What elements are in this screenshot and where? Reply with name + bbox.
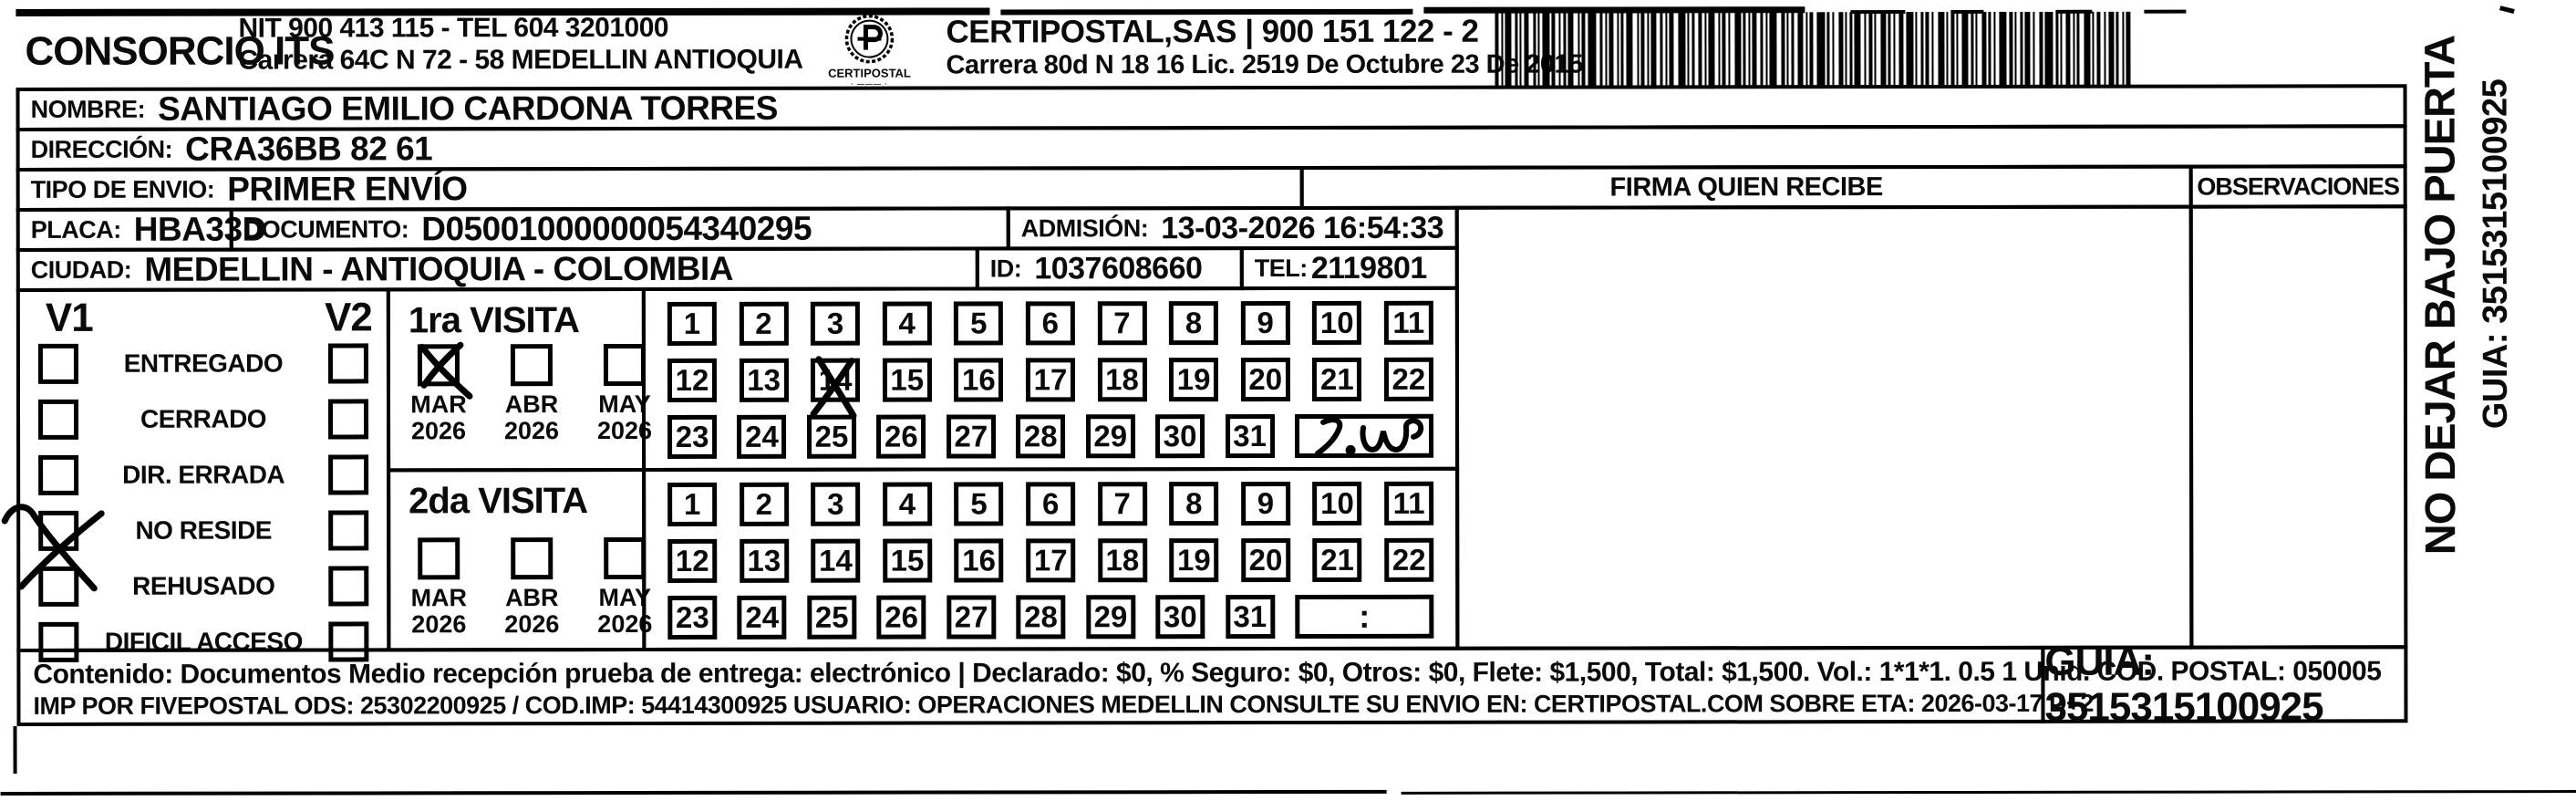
day-cell-6: 6 (1026, 482, 1075, 525)
ciudad-value: MEDELLIN - ANTIOQUIA - COLOMBIA (144, 250, 733, 289)
visit2-months: MAR2026ABR2026MAY2026 (405, 537, 658, 638)
day-cell-31: 31 (1226, 414, 1275, 458)
visit1-panel: 1ra VISITA MAR2026ABR2026MAY2026 (387, 287, 646, 472)
month-checkbox-may (604, 344, 646, 386)
day-cell-27: 27 (947, 414, 996, 458)
tipo-envio-cell: TIPO DE ENVIO: PRIMER ENVÍO (16, 166, 1304, 212)
certipostal-logo: CERTIPOSTAL · ——— · (827, 14, 911, 88)
day-cell-4: 4 (883, 302, 932, 346)
day-cell-18: 18 (1098, 538, 1147, 582)
visit1-months: MAR2026ABR2026MAY2026 (405, 344, 658, 444)
day-cell-22: 22 (1384, 358, 1433, 401)
scanned-delivery-form: CONSORCIO ITS NIT 900 413 115 - TEL 604 … (0, 0, 2576, 801)
tel-value: 2119801 (1311, 250, 1427, 286)
month-option: ABR2026 (498, 344, 565, 444)
id-value: 1037608660 (1034, 251, 1202, 286)
day-row: 1234567891011 (667, 301, 1433, 346)
day-cell-8: 8 (1169, 482, 1218, 525)
barcode (1495, 12, 2193, 89)
firma-area (1455, 205, 2194, 650)
month-option: ABR2026 (498, 537, 565, 638)
status-label: CERRADO (78, 404, 328, 433)
day-cell-11: 11 (1384, 482, 1433, 525)
day-row: 232425262728293031: (667, 595, 1433, 640)
status-label: DIR. ERRADA (78, 460, 328, 489)
day-cell-15: 15 (883, 359, 932, 402)
status-panel: V1 V2 ENTREGADOCERRADODIR. ERRADANO RESI… (16, 287, 391, 652)
day-cell-16: 16 (955, 538, 1004, 582)
day-cell-20: 20 (1241, 358, 1290, 401)
tel-cell: TEL: 2119801 (1240, 246, 1459, 290)
day-cell-19: 19 (1169, 358, 1218, 401)
nombre-value: SANTIAGO EMILIO CARDONA TORRES (158, 89, 778, 129)
scan-artifact (2499, 5, 2515, 14)
month-option: MAR2026 (405, 537, 472, 638)
checkbox-v1-cerrado (38, 399, 78, 439)
carrier-info: CERTIPOSTAL,SAS | 900 151 122 - 2 Carrer… (946, 15, 1582, 81)
shipment-details-line2: IMP POR FIVEPOSTAL ODS: 25302200925 / CO… (33, 689, 2028, 722)
day-cell-12: 12 (667, 539, 717, 583)
visit2-title: 2da VISITA (409, 481, 587, 522)
day-cell-1: 1 (667, 302, 717, 346)
day-cell-27: 27 (947, 595, 996, 639)
id-label: ID: (990, 255, 1022, 283)
day-cell-14: 14 (811, 359, 860, 402)
day-cell-6: 6 (1026, 301, 1075, 345)
day-cell-28: 28 (1016, 414, 1065, 458)
tel-label: TEL: (1255, 254, 1308, 282)
day-cell-25: 25 (807, 415, 856, 459)
day-cell-17: 17 (1026, 538, 1075, 582)
status-label: REHUSADO (78, 571, 328, 600)
bottom-scan-line (1, 790, 1387, 796)
side-guia-text: GUIA: 3515315100925 (2477, 155, 2519, 429)
documento-label: DOCUMENTO: (244, 215, 409, 244)
month-checkbox-abr (511, 344, 553, 386)
direccion-label: DIRECCIÓN: (31, 135, 173, 163)
day-cell-8: 8 (1169, 301, 1218, 345)
status-rows: ENTREGADOCERRADODIR. ERRADANO RESIDEREHU… (20, 335, 388, 670)
day-cell-10: 10 (1312, 301, 1361, 345)
status-row: ENTREGADO (20, 335, 387, 391)
visit2-day-grid-rows: 1234567891011121314151617181920212223242… (646, 471, 1455, 648)
ciudad-cell: CIUDAD: MEDELLIN - ANTIOQUIA - COLOMBIA (16, 246, 979, 291)
month-year: 2026 (411, 611, 466, 638)
day-row: 1213141516171819202122 (667, 358, 1433, 402)
handwritten-note-box (1295, 414, 1433, 458)
day-cell-21: 21 (1312, 358, 1361, 401)
status-label: ENTREGADO (78, 348, 328, 378)
visit1-title: 1ra VISITA (409, 300, 579, 341)
month-label: MAR (410, 391, 467, 418)
sender-info: NIT 900 413 115 - TEL 604 3201000 Carrer… (238, 12, 802, 77)
day-cell-13: 13 (740, 359, 789, 402)
day-cell-5: 5 (954, 482, 1003, 525)
month-label: MAR (411, 585, 468, 611)
status-row: REHUSADO (20, 557, 387, 614)
month-label: ABR (505, 585, 559, 611)
firma-column-header: FIRMA QUIEN RECIBE (1300, 165, 2193, 210)
day-cell-11: 11 (1384, 301, 1433, 345)
month-label: ABR (505, 391, 559, 418)
day-cell-24: 24 (737, 415, 786, 459)
checkbox-v2-entregado (328, 343, 368, 383)
day-cell-2: 2 (739, 302, 788, 346)
placa-cell: PLACA: HBA33D (16, 208, 233, 252)
month-option: MAR2026 (405, 344, 472, 444)
admision-cell: ADMISIÓN: 13-03-2026 16:54:33 (1007, 206, 1459, 251)
admision-label: ADMISIÓN: (1021, 214, 1149, 243)
day-row: 1234567891011 (667, 482, 1433, 526)
day-cell-5: 5 (954, 301, 1003, 345)
status-row: NO RESIDE (20, 502, 387, 558)
checkbox-v1-dir-errada (38, 454, 78, 494)
day-cell-23: 23 (667, 415, 717, 459)
day-cell-31: 31 (1226, 595, 1275, 639)
day-cell-1: 1 (667, 483, 717, 526)
logo-caption: CERTIPOSTAL (827, 67, 911, 80)
shipment-details-cell: Contenido: Documentos Medio recepción pr… (16, 646, 2044, 726)
day-cell-29: 29 (1086, 414, 1135, 458)
sender-address-line: Carrera 64C N 72 - 58 MEDELLIN ANTIOQUIA (238, 44, 802, 77)
day-cell-16: 16 (954, 358, 1003, 401)
status-col-v2-header: V2 (325, 295, 372, 340)
carrier-address-line: Carrera 80d N 18 16 Lic. 2519 De Octubre… (946, 49, 1582, 81)
visit1-day-grid-rows: 1234567891011121314151617181920212223242… (646, 290, 1455, 468)
day-cell-13: 13 (740, 539, 789, 583)
tipo-envio-label: TIPO DE ENVIO: (31, 175, 215, 203)
month-year: 2026 (504, 418, 559, 444)
day-cell-3: 3 (811, 483, 860, 526)
checkbox-v2-cerrado (328, 399, 368, 439)
day-cell-12: 12 (667, 359, 717, 402)
tipo-envio-value: PRIMER ENVÍO (227, 170, 467, 208)
visit1-day-grid: 1234567891011121314151617181920212223242… (642, 286, 1459, 472)
status-col-v1-header: V1 (46, 296, 93, 341)
side-warning-text: NO DEJAR BAJO PUERTA (2415, 108, 2470, 555)
checkbox-v1-entregado (38, 343, 78, 383)
day-cell-7: 7 (1097, 301, 1146, 345)
certipostal-logo-icon (839, 14, 899, 68)
month-year: 2026 (504, 611, 559, 638)
id-cell: ID: 1037608660 (976, 246, 1244, 290)
observaciones-column-header: OBSERVACIONES (2189, 164, 2407, 208)
checkbox-v2-no-reside (328, 510, 368, 550)
day-cell-10: 10 (1312, 482, 1361, 525)
shipment-details-line1: Contenido: Documentos Medio recepción pr… (33, 655, 2028, 692)
visit2-day-grid: 1234567891011121314151617181920212223242… (642, 467, 1459, 651)
carrier-name-line: CERTIPOSTAL,SAS | 900 151 122 - 2 (946, 15, 1582, 50)
checkbox-v1-rehusado (38, 566, 78, 606)
day-cell-24: 24 (738, 596, 787, 640)
month-checkbox-mar (418, 344, 460, 386)
sender-nit-line: NIT 900 413 115 - TEL 604 3201000 (238, 12, 802, 45)
admision-value: 13-03-2026 16:54:33 (1161, 210, 1443, 245)
status-row: CERRADO (20, 390, 387, 447)
day-cell-15: 15 (883, 539, 932, 583)
day-cell-30: 30 (1155, 414, 1205, 458)
day-cell-2: 2 (740, 483, 789, 526)
observaciones-area (2189, 204, 2408, 649)
day-cell-7: 7 (1098, 482, 1147, 525)
day-cell-26: 26 (876, 415, 926, 459)
month-checkbox-abr (511, 537, 553, 579)
day-cell-30: 30 (1155, 595, 1205, 639)
month-year: 2026 (411, 418, 466, 444)
day-cell-28: 28 (1016, 595, 1065, 639)
day-cell-21: 21 (1313, 538, 1362, 582)
day-cell-18: 18 (1097, 358, 1146, 401)
day-cell-25: 25 (807, 596, 856, 640)
day-cell-3: 3 (811, 302, 860, 346)
status-row: DIR. ERRADA (20, 446, 387, 503)
month-checkbox-mar (418, 537, 460, 579)
day-row: 1213141516171819202122 (667, 538, 1433, 583)
documento-cell: DOCUMENTO: D05001000000054340295 (230, 206, 1010, 251)
day-cell-29: 29 (1086, 595, 1135, 639)
direccion-value: CRA36BB 82 61 (185, 130, 432, 168)
form-sheet: CONSORCIO ITS NIT 900 413 115 - TEL 604 … (0, 0, 2576, 801)
day-cell-26: 26 (877, 596, 926, 640)
day-cell-9: 9 (1241, 482, 1290, 525)
day-cell-19: 19 (1169, 538, 1218, 582)
day-cell-20: 20 (1241, 538, 1290, 582)
documento-value: D05001000000054340295 (421, 210, 812, 249)
checkbox-v2-dir-errada (328, 454, 368, 494)
left-scan-artifact (13, 726, 16, 774)
month-checkbox-may (604, 537, 646, 579)
day-cell-4: 4 (883, 483, 932, 526)
bottom-scan-line (1402, 790, 2576, 795)
checkbox-v1-no-reside (38, 510, 78, 550)
day-cell-22: 22 (1384, 538, 1433, 582)
placa-label: PLACA: (31, 215, 121, 244)
time-entry-box: : (1295, 595, 1433, 639)
ciudad-label: CIUDAD: (31, 255, 132, 284)
day-cell-14: 14 (811, 539, 860, 583)
visit2-panel: 2da VISITA MAR2026ABR2026MAY2026 (387, 468, 646, 651)
status-label: NO RESIDE (78, 515, 328, 545)
nombre-label: NOMBRE: (31, 95, 146, 123)
day-cell-9: 9 (1241, 301, 1290, 345)
day-cell-23: 23 (667, 596, 717, 640)
day-row: 232425262728293031 (667, 414, 1433, 459)
checkbox-v2-rehusado (328, 566, 368, 606)
day-cell-17: 17 (1026, 358, 1075, 401)
guia-number-cell: GUIA: 3515315100925 (2041, 645, 2407, 723)
